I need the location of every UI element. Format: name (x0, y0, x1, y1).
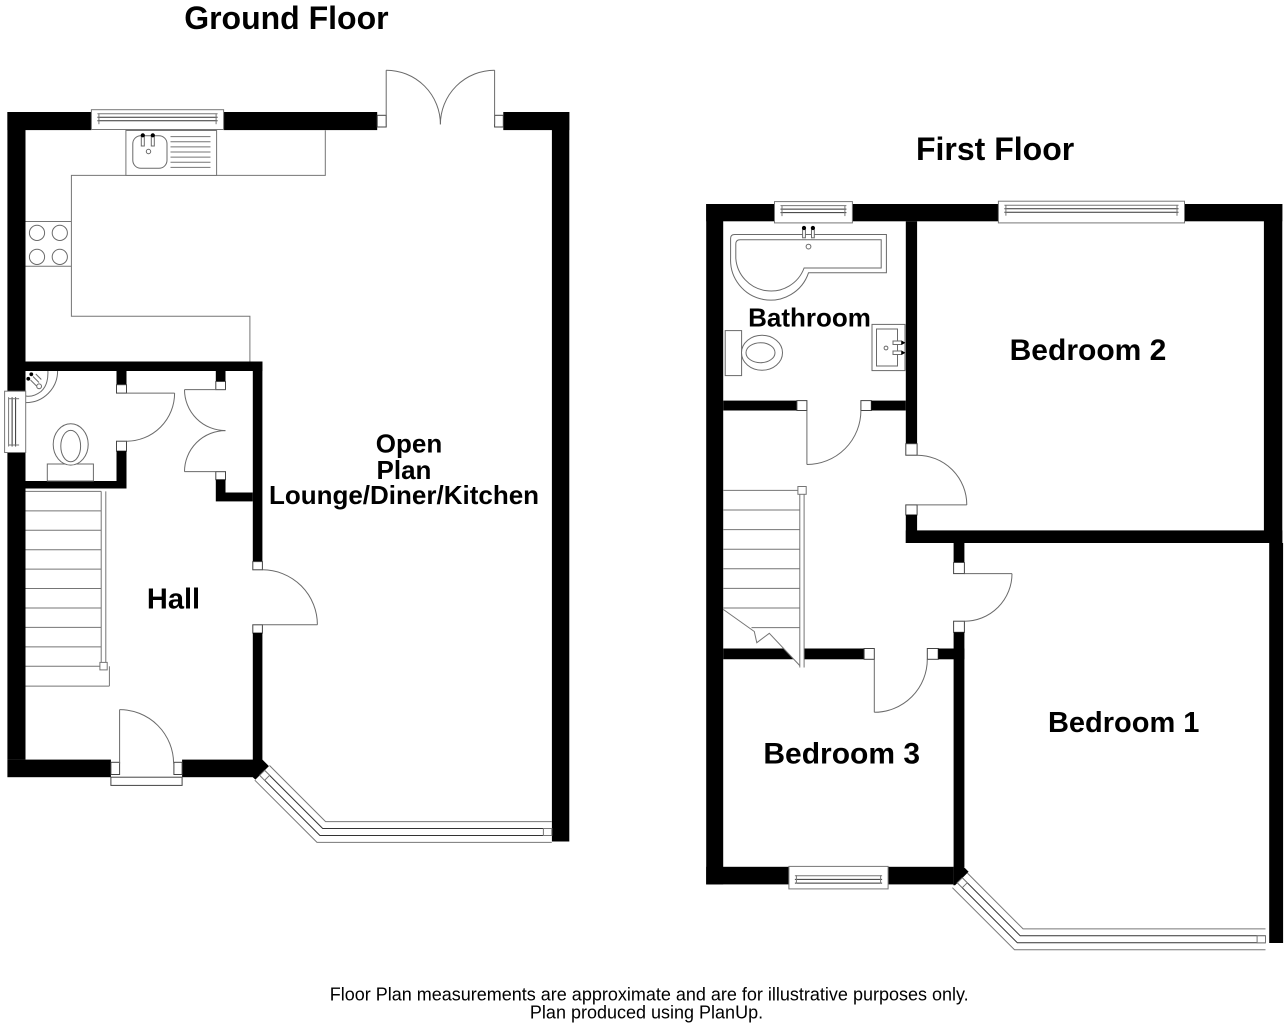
svg-text:First Floor: First Floor (916, 131, 1074, 167)
svg-text:Bathroom: Bathroom (748, 303, 871, 333)
svg-text:Bedroom 1: Bedroom 1 (1048, 707, 1199, 739)
svg-text:Lounge/Diner/Kitchen: Lounge/Diner/Kitchen (269, 480, 539, 510)
svg-text:Plan produced using PlanUp.: Plan produced using PlanUp. (530, 1003, 763, 1023)
svg-text:Bedroom 2: Bedroom 2 (1010, 334, 1167, 367)
svg-text:Bedroom 3: Bedroom 3 (763, 738, 920, 771)
svg-text:Floor Plan measurements are ap: Floor Plan measurements are approximate … (330, 985, 969, 1005)
svg-text:Ground Floor: Ground Floor (184, 0, 388, 36)
svg-text:Hall: Hall (147, 583, 200, 615)
